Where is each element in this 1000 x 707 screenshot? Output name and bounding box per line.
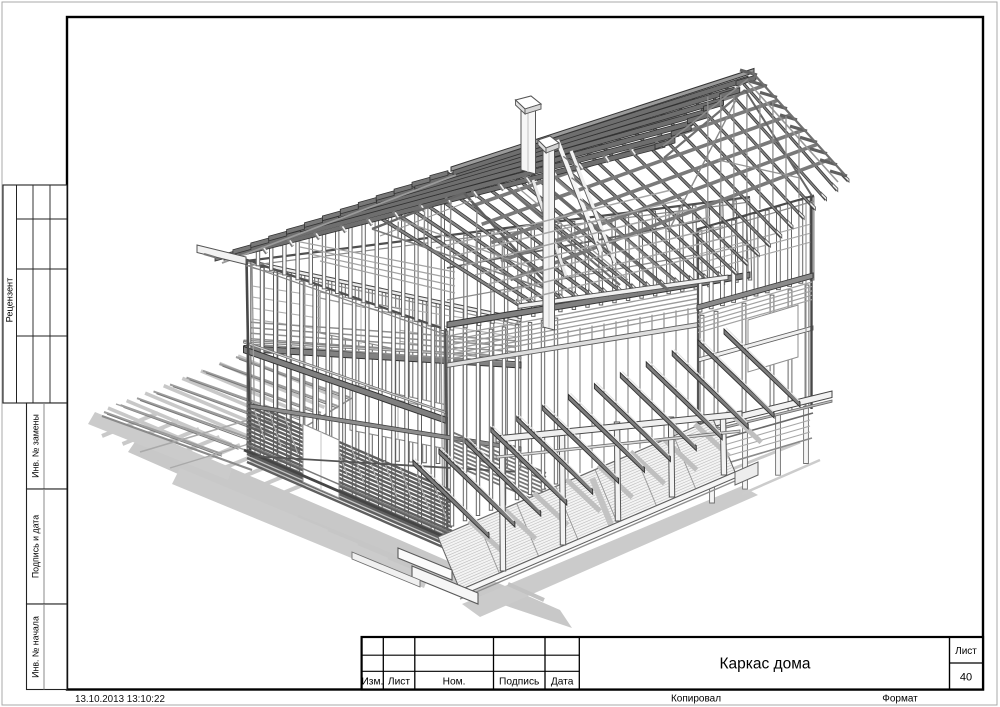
svg-text:Инв. № замены: Инв. № замены [31,414,41,478]
svg-text:Лист: Лист [955,646,977,657]
svg-text:Формат: Формат [882,694,918,705]
svg-text:Копировал: Копировал [671,694,721,705]
svg-text:Подпись: Подпись [499,677,539,688]
svg-text:Изм.: Изм. [361,677,383,688]
svg-text:Ном.: Ном. [443,677,466,688]
svg-text:Инв. № начала: Инв. № начала [31,616,41,678]
svg-text:Подпись и дата: Подпись и дата [31,515,41,578]
svg-text:Каркас дома: Каркас дома [719,656,810,673]
svg-text:40: 40 [960,672,972,684]
svg-text:13.10.2013 13:10:22: 13.10.2013 13:10:22 [75,694,165,705]
svg-text:Рецензент: Рецензент [5,277,15,322]
svg-text:Дата: Дата [551,677,574,688]
svg-text:Лист: Лист [388,677,410,688]
